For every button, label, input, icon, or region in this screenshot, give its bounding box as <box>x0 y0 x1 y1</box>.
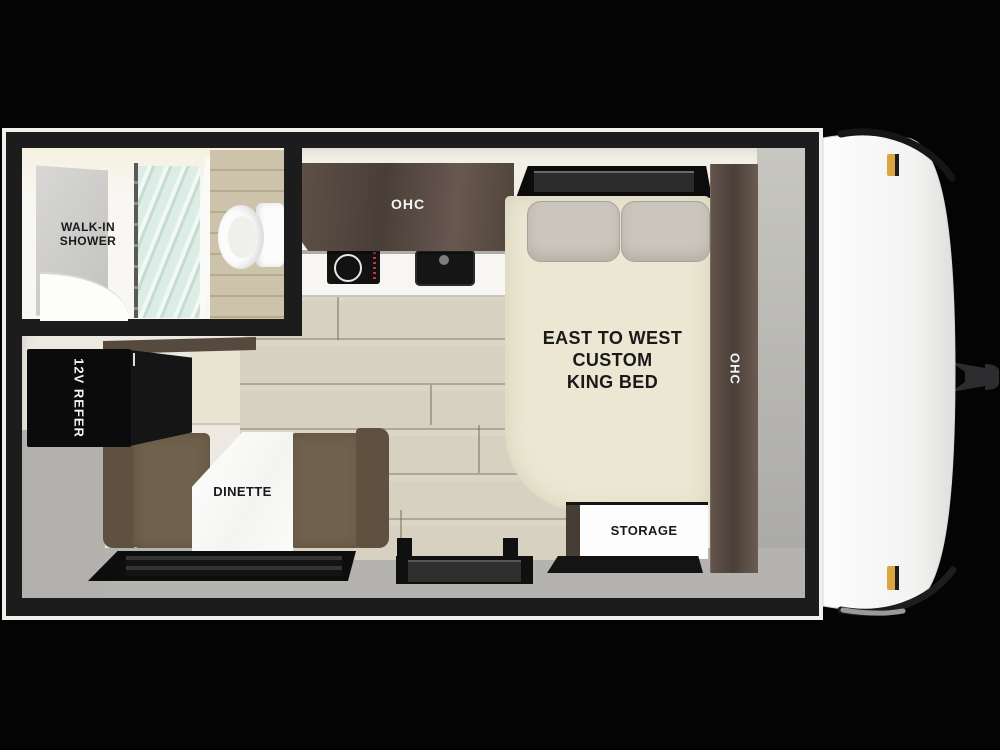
hitch-coupler <box>951 362 999 392</box>
bedside-ohc-label: OHC <box>727 353 742 385</box>
cooktop <box>327 249 380 284</box>
dinette-window <box>88 551 356 581</box>
right-floor-strip <box>757 148 805 598</box>
bedroom-window-glass <box>534 171 694 192</box>
storage-label: STORAGE <box>580 523 708 538</box>
entry-step-tray <box>396 556 533 584</box>
walk-in-shower-label-line2: SHOWER <box>46 234 130 248</box>
entry-step-tray-inner <box>408 560 521 582</box>
marker-light-bottom-edge <box>895 566 899 590</box>
shower-glass <box>138 166 200 318</box>
cooktop-burner-ring <box>334 254 362 282</box>
refer-cabinet-side <box>130 350 192 446</box>
storage-cabinet-side <box>566 502 580 559</box>
left-floor-patch <box>22 430 105 598</box>
bedroom-window <box>516 166 712 198</box>
walk-in-shower-label-line1: WALK-IN <box>46 220 130 234</box>
wood-floor-joint <box>337 297 339 340</box>
dinette-bench-right <box>290 433 362 548</box>
pillow <box>527 201 620 262</box>
front-cap-body <box>823 134 955 610</box>
marker-light-top <box>887 154 896 176</box>
king-bed-label: EAST TO WEST CUSTOM KING BED <box>515 327 710 393</box>
sink <box>415 250 475 286</box>
refrigerator-handle <box>133 353 135 366</box>
king-bed-label-line3: KING BED <box>515 371 710 393</box>
front-cap <box>815 120 1000 625</box>
toilet-seat <box>228 216 256 258</box>
wood-floor-joint <box>430 385 432 425</box>
kitchen-ohc-label: OHC <box>302 196 514 212</box>
dinette-window-glass <box>126 556 342 576</box>
floorplan-image: WALK-IN SHOWER OHC EAST TO WEST CUSTOM K… <box>0 0 1000 750</box>
dinette-label: DINETTE <box>192 484 293 499</box>
king-bed-label-line1: EAST TO WEST <box>515 327 710 349</box>
storage-step-mat <box>547 556 703 573</box>
refrigerator-label: 12V REFER <box>72 358 87 438</box>
pillow <box>621 201 710 262</box>
storage-box: STORAGE <box>580 502 708 559</box>
walk-in-shower-label: WALK-IN SHOWER <box>46 220 130 248</box>
shower-glass-rod <box>134 163 138 318</box>
refrigerator: 12V REFER <box>27 349 131 447</box>
cooktop-controls <box>373 252 376 281</box>
marker-light-bottom <box>887 566 896 590</box>
dinette-bench-back-right <box>356 428 389 548</box>
kitchen-ohc-cabinet: OHC <box>302 163 514 251</box>
wood-floor-joint <box>478 425 480 473</box>
king-bed-label-line2: CUSTOM <box>515 349 710 371</box>
refer-side-cabinet <box>190 348 240 425</box>
bedside-ohc-cabinet: OHC <box>710 164 758 573</box>
marker-light-top-edge <box>895 154 899 176</box>
sink-drain <box>439 255 449 265</box>
